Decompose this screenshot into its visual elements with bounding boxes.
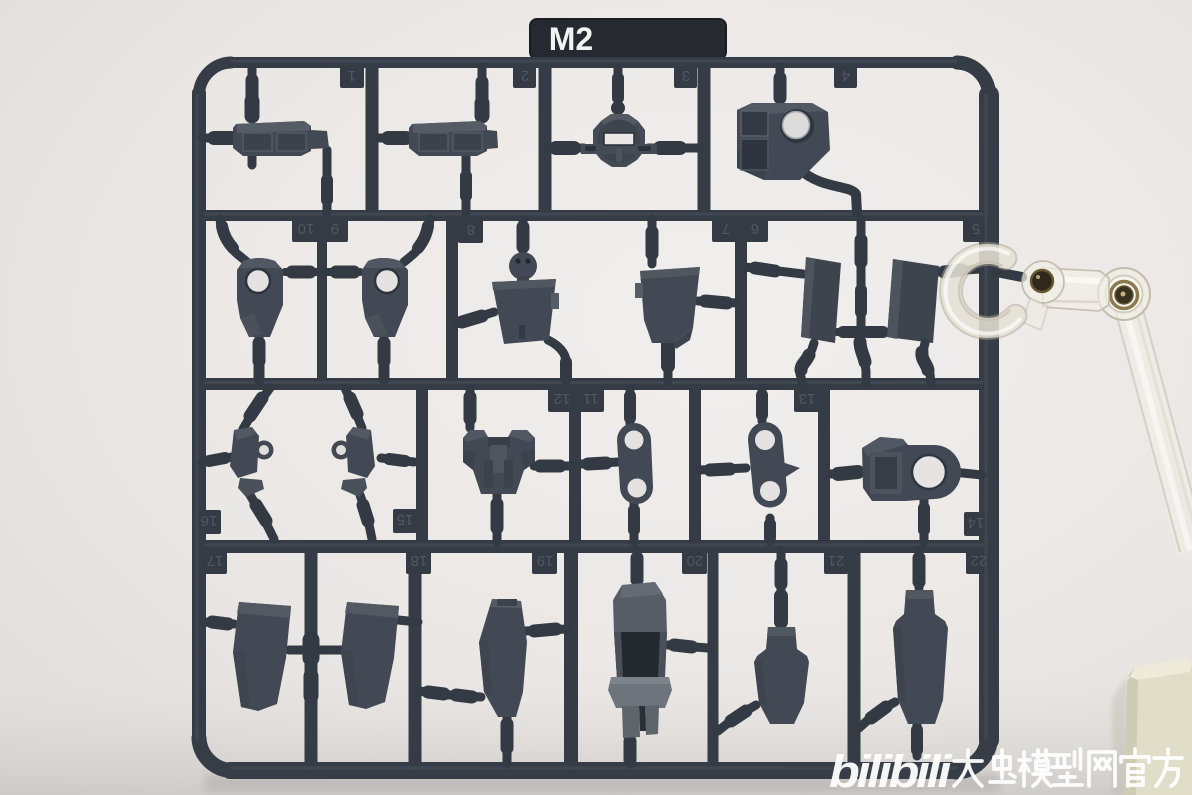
svg-text:19: 19 (537, 552, 554, 569)
svg-text:10: 10 (298, 220, 315, 237)
svg-text:13: 13 (799, 390, 816, 407)
svg-text:11: 11 (583, 390, 599, 407)
svg-text:5: 5 (972, 220, 980, 237)
svg-text:6: 6 (751, 220, 759, 237)
svg-text:M2: M2 (549, 21, 593, 57)
svg-text:4: 4 (842, 67, 850, 84)
svg-text:7: 7 (722, 220, 730, 237)
svg-text:12: 12 (554, 390, 571, 407)
svg-text:20: 20 (687, 552, 704, 569)
svg-text:1: 1 (348, 67, 356, 84)
svg-text:8: 8 (467, 221, 475, 238)
svg-text:15: 15 (397, 511, 414, 528)
svg-text:14: 14 (968, 514, 985, 531)
svg-text:16: 16 (201, 512, 218, 529)
svg-text:17: 17 (207, 552, 224, 569)
svg-text:18: 18 (411, 552, 428, 569)
svg-text:2: 2 (521, 67, 529, 84)
svg-text:3: 3 (682, 67, 690, 84)
svg-text:21: 21 (828, 552, 845, 569)
svg-text:9: 9 (331, 220, 339, 237)
svg-text:bilibili: bilibili (829, 746, 953, 795)
